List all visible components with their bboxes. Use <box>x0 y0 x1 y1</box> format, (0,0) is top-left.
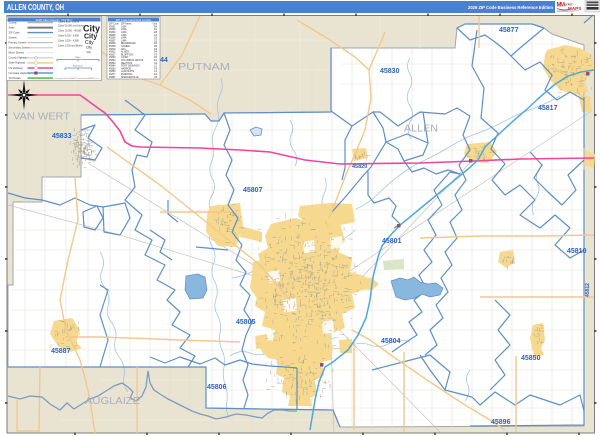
svg-text:45830: 45830 <box>109 60 116 62</box>
svg-text:VAN WERT: VAN WERT <box>13 112 70 123</box>
svg-text:COLUMBUS GROVE: COLUMBUS GROVE <box>121 60 144 62</box>
svg-text:CAIRO: CAIRO <box>121 56 129 59</box>
svg-text:AUGLAIZE: AUGLAIZE <box>85 396 140 407</box>
svg-text:City: City <box>87 51 92 54</box>
svg-text:ADA: ADA <box>121 48 126 51</box>
svg-text:LIMA: LIMA <box>121 37 127 40</box>
svg-text:45804: 45804 <box>381 338 401 345</box>
svg-text:LIMA: LIMA <box>121 31 127 34</box>
svg-text:45877: 45877 <box>109 74 116 76</box>
svg-text:City: City <box>83 24 100 34</box>
svg-text:45817: 45817 <box>538 105 558 112</box>
svg-text:City: City <box>86 46 92 50</box>
svg-text:US Highway: US Highway <box>9 66 24 70</box>
svg-text:45804: 45804 <box>109 32 116 34</box>
svg-text:45807: 45807 <box>109 40 116 42</box>
svg-text:LIMA: LIMA <box>121 28 127 31</box>
svg-text:Grid: Grid <box>153 23 158 26</box>
svg-text:45820: 45820 <box>109 57 116 59</box>
svg-text:ZIP Name: ZIP Name <box>121 24 132 26</box>
svg-text:45812: 45812 <box>585 283 591 297</box>
svg-text:Primary Streets: Primary Streets <box>9 41 28 45</box>
svg-text:45830: 45830 <box>380 68 400 75</box>
svg-text:45820: 45820 <box>352 164 367 170</box>
svg-text:Minor Streets: Minor Streets <box>9 51 25 55</box>
svg-text:PANDORA: PANDORA <box>121 73 133 76</box>
svg-text:SPENCERVILLE: SPENCERVILLE <box>121 77 139 79</box>
svg-text:LIMA: LIMA <box>121 39 127 42</box>
svg-text:45812: 45812 <box>109 52 116 54</box>
svg-text:45833: 45833 <box>109 63 116 65</box>
svg-text:Cities 1,000 and Below: Cities 1,000 and Below <box>58 45 83 48</box>
svg-text:ALLEN: ALLEN <box>404 124 438 135</box>
svg-text:45833: 45833 <box>52 133 72 140</box>
svg-text:ALLEN COUNTY, OH: ALLEN COUNTY, OH <box>7 3 64 12</box>
svg-text:Cities 50,000 and Above: Cities 50,000 and Above <box>58 25 85 28</box>
svg-text:45810: 45810 <box>109 49 116 51</box>
svg-text:45817: 45817 <box>109 54 116 56</box>
svg-text:MAPS: MAPS <box>568 6 581 11</box>
svg-text:45801: 45801 <box>109 26 116 28</box>
svg-text:LAFAYETTE: LAFAYETTE <box>121 70 134 73</box>
svg-text:45844: 45844 <box>109 66 116 68</box>
svg-text:State: State <box>9 25 16 29</box>
svg-text:2026 ZIP Code Business Referen: 2026 ZIP Code Business Reference Edition <box>468 5 553 10</box>
svg-text:45802: 45802 <box>109 29 116 31</box>
svg-text:Streets: Streets <box>9 36 18 40</box>
svg-text:45806: 45806 <box>207 384 227 391</box>
svg-text:ALGER: ALGER <box>121 51 129 54</box>
svg-text:ZIP Code: ZIP Code <box>9 30 20 34</box>
svg-text:45887: 45887 <box>109 77 116 79</box>
svg-text:45801: 45801 <box>382 238 402 245</box>
svg-text:45806: 45806 <box>109 38 116 40</box>
svg-text:PUTNAM: PUTNAM <box>178 62 230 73</box>
svg-text:45805: 45805 <box>109 35 116 37</box>
svg-text:Cities 1,000 - 4,999: Cities 1,000 - 4,999 <box>58 40 79 43</box>
svg-text:Cities and Towns: Cities and Towns <box>58 20 80 24</box>
svg-text:Secondary Streets: Secondary Streets <box>9 46 31 50</box>
svg-text:ZIP Code Index/Grid Locator: ZIP Code Index/Grid Locator <box>116 18 152 22</box>
svg-text:GOMER: GOMER <box>121 46 130 48</box>
svg-text:Cities 10,000 - 49,999: Cities 10,000 - 49,999 <box>58 30 82 33</box>
svg-text:45805: 45805 <box>236 319 256 326</box>
svg-text:FORT JENNINGS: FORT JENNINGS <box>121 66 140 68</box>
svg-text:ZIP Code: ZIP Code <box>109 24 119 26</box>
svg-text:45887: 45887 <box>51 348 71 355</box>
svg-text:45808: 45808 <box>109 43 116 45</box>
svg-text:Cities 5,000 - 9,999: Cities 5,000 - 9,999 <box>58 35 79 38</box>
svg-text:Interstate Highway: Interstate Highway <box>9 71 31 75</box>
svg-text:State Highway: State Highway <box>9 61 26 65</box>
svg-text:44: 44 <box>160 57 168 64</box>
svg-text:County Highway: County Highway <box>9 56 29 60</box>
svg-text:45807: 45807 <box>243 187 263 194</box>
svg-text:45854: 45854 <box>109 71 116 73</box>
svg-text:LIMA: LIMA <box>121 34 127 37</box>
svg-text:Kilometers: Kilometers <box>73 65 84 68</box>
svg-text:Miles: Miles <box>75 57 81 59</box>
svg-text:45896: 45896 <box>491 419 511 426</box>
svg-text:BEAVERDAM: BEAVERDAM <box>121 42 136 45</box>
svg-text:DELPHOS: DELPHOS <box>121 63 133 65</box>
svg-text:45809: 45809 <box>109 46 116 48</box>
svg-text:HARROD: HARROD <box>121 67 131 70</box>
svg-text:LIMA: LIMA <box>121 25 127 28</box>
svg-text:45850: 45850 <box>109 68 116 70</box>
svg-text:County: County <box>9 20 18 24</box>
svg-text:45810: 45810 <box>567 248 587 255</box>
svg-text:Copyright MarketMAPS www.Marke: Copyright MarketMAPS www.MarketMAPS.com <box>55 77 99 80</box>
svg-text:45850: 45850 <box>521 355 541 362</box>
svg-text:Toll Roads: Toll Roads <box>9 76 22 80</box>
svg-text:45877: 45877 <box>499 27 519 34</box>
svg-text:BLUFFTON: BLUFFTON <box>121 54 134 56</box>
